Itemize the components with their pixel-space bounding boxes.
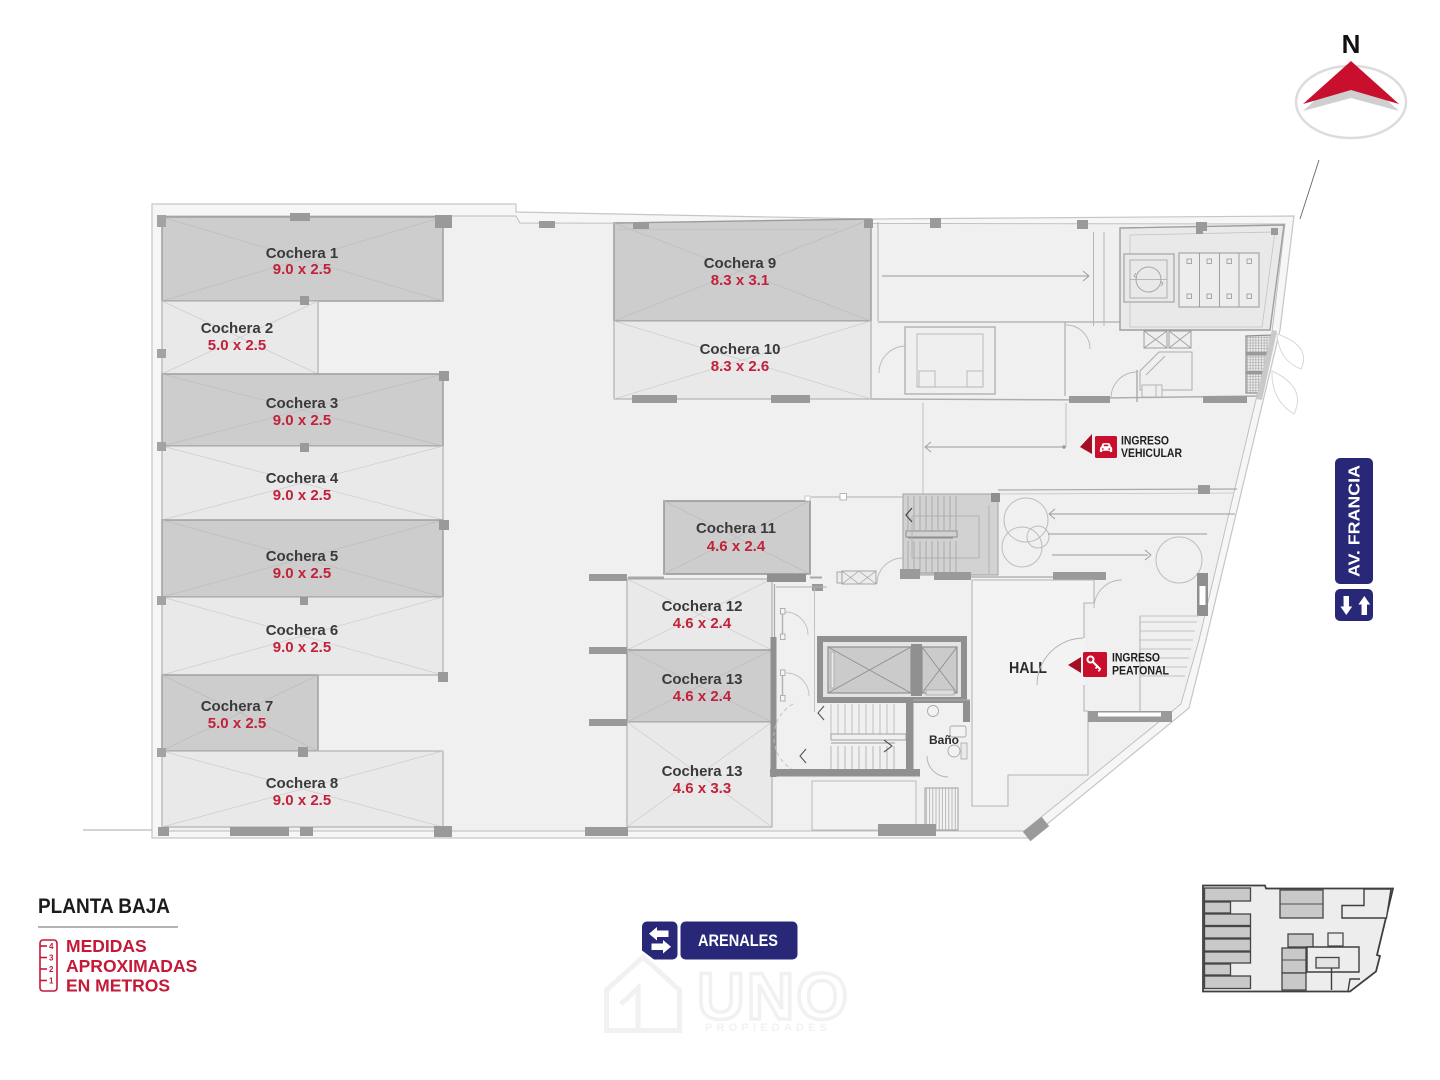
svg-text:Cochera 10: Cochera 10 [700,341,781,358]
svg-text:9.0 x 2.5: 9.0 x 2.5 [273,565,331,582]
svg-text:4.6 x 2.4: 4.6 x 2.4 [673,688,732,705]
svg-text:5.0 x 2.5: 5.0 x 2.5 [208,337,266,354]
svg-text:PLANTA BAJA: PLANTA BAJA [38,895,170,918]
svg-text:PEATONAL: PEATONAL [1112,666,1169,678]
svg-text:Cochera 3: Cochera 3 [266,395,339,412]
svg-text:3: 3 [49,954,54,963]
svg-text:Cochera 13: Cochera 13 [662,763,743,780]
svg-text:9.0 x 2.5: 9.0 x 2.5 [273,487,331,504]
svg-text:9.0 x 2.5: 9.0 x 2.5 [273,412,331,429]
svg-text:4.6 x 3.3: 4.6 x 3.3 [673,780,731,797]
svg-text:Cochera 9: Cochera 9 [704,255,777,272]
svg-text:HALL: HALL [1009,660,1047,677]
svg-text:VEHICULAR: VEHICULAR [1121,448,1183,460]
svg-text:Cochera 7: Cochera 7 [201,698,274,715]
svg-text:INGRESO: INGRESO [1112,653,1160,665]
svg-text:1: 1 [49,977,54,986]
svg-text:9.0 x 2.5: 9.0 x 2.5 [273,639,331,656]
svg-text:8.3 x 3.1: 8.3 x 3.1 [711,272,769,289]
svg-text:9.0 x 2.5: 9.0 x 2.5 [273,261,331,278]
svg-text:5.0 x 2.5: 5.0 x 2.5 [208,715,266,732]
svg-text:Cochera 6: Cochera 6 [266,622,339,639]
svg-text:Baño: Baño [929,733,959,747]
svg-text:Cochera 12: Cochera 12 [662,598,743,615]
svg-text:N: N [1342,29,1361,59]
svg-text:Cochera 8: Cochera 8 [266,775,339,792]
svg-text:Cochera 5: Cochera 5 [266,548,339,565]
svg-text:PROPIEDADES: PROPIEDADES [705,1022,831,1034]
svg-text:INGRESO: INGRESO [1121,436,1169,448]
svg-text:9.0 x 2.5: 9.0 x 2.5 [273,792,331,809]
svg-text:Cochera 11: Cochera 11 [696,520,776,537]
svg-text:EN METROS: EN METROS [66,976,170,996]
svg-text:Cochera 4: Cochera 4 [266,470,339,487]
svg-text:APROXIMADAS: APROXIMADAS [66,956,197,976]
svg-text:2: 2 [49,965,54,974]
svg-text:4.6 x 2.4: 4.6 x 2.4 [673,615,732,632]
svg-text:ARENALES: ARENALES [698,932,778,950]
svg-text:Cochera 1: Cochera 1 [266,245,339,262]
svg-text:MEDIDAS: MEDIDAS [66,936,147,956]
svg-text:Cochera 13: Cochera 13 [662,671,743,688]
svg-text:4.6 x 2.4: 4.6 x 2.4 [707,538,766,555]
svg-text:Cochera 2: Cochera 2 [201,320,274,337]
svg-text:4: 4 [49,942,54,951]
svg-text:8.3 x 2.6: 8.3 x 2.6 [711,358,769,375]
svg-text:AV. FRANCIA: AV. FRANCIA [1347,465,1364,577]
